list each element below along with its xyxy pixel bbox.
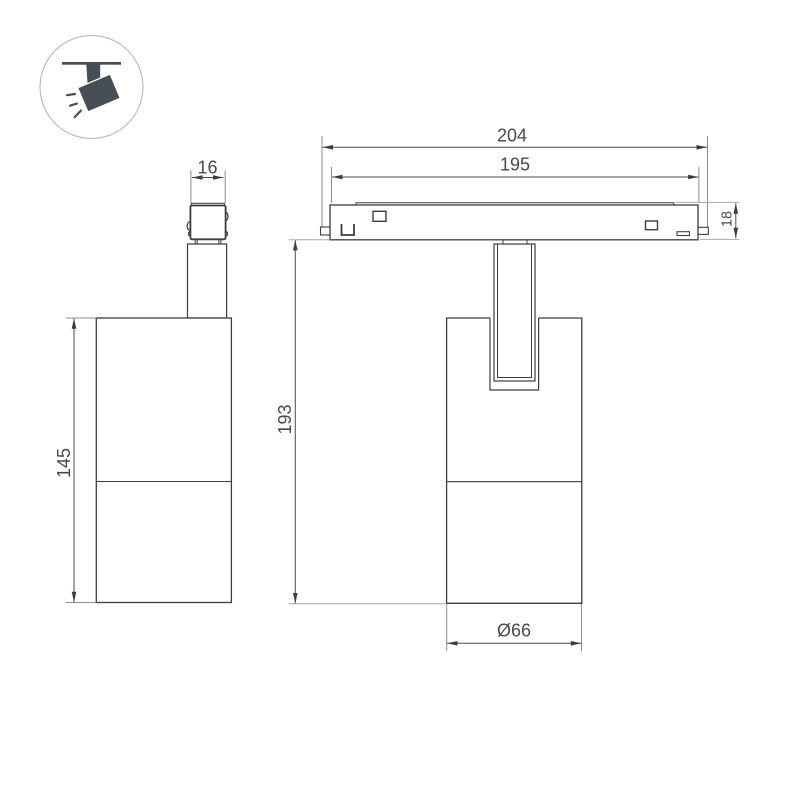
svg-text:204: 204 <box>497 126 527 146</box>
svg-text:193: 193 <box>275 404 295 434</box>
svg-text:Ø66: Ø66 <box>497 621 531 641</box>
svg-text:195: 195 <box>500 155 530 175</box>
svg-text:16: 16 <box>197 158 217 178</box>
svg-text:145: 145 <box>54 448 74 478</box>
svg-text:18: 18 <box>720 211 736 227</box>
